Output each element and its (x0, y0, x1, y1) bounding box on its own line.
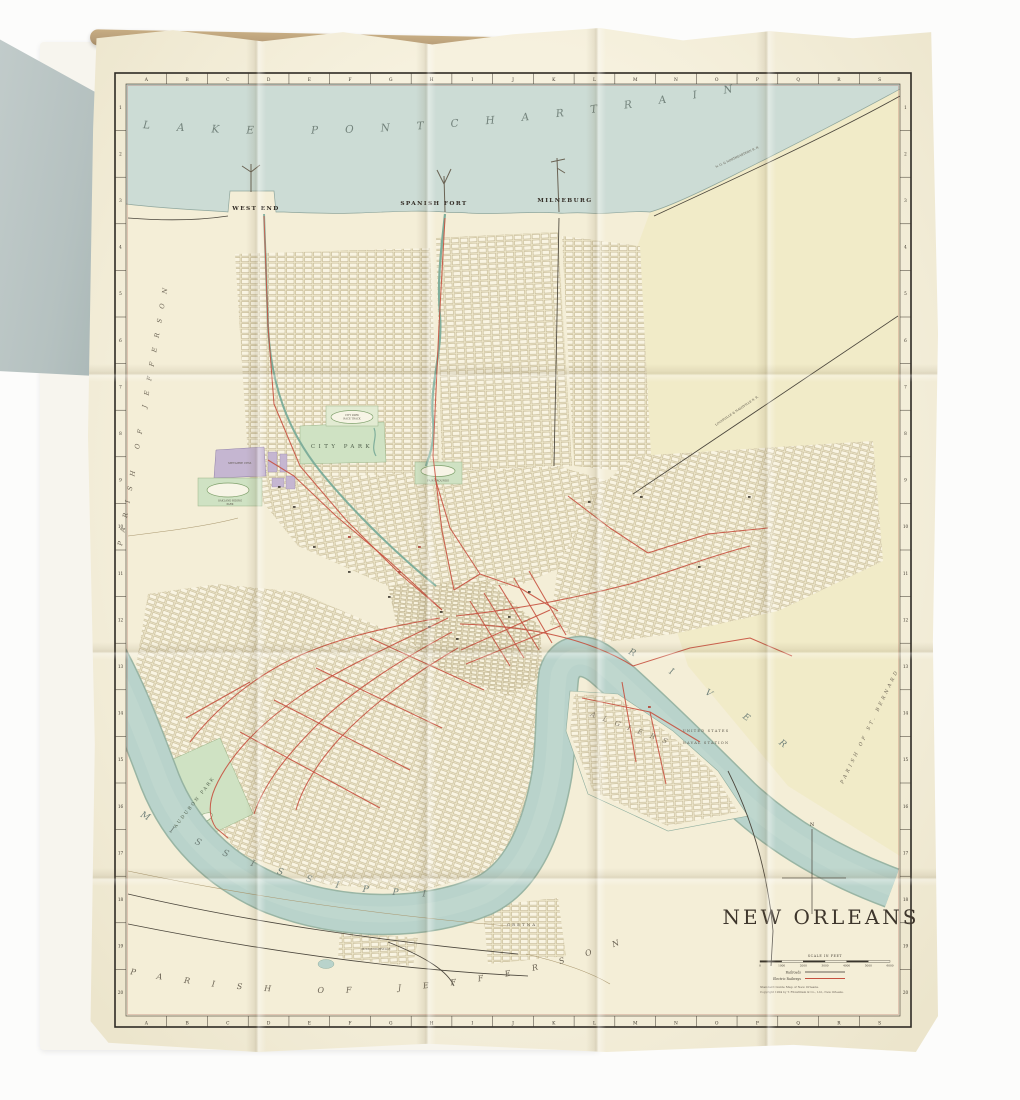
svg-text:9: 9 (119, 478, 122, 483)
race-track-label-2: RACE TRACK (343, 418, 360, 421)
svg-text:E: E (308, 78, 311, 83)
legend-electric-label: Electric Railways (773, 977, 801, 981)
pond (318, 960, 334, 969)
svg-text:F: F (349, 1022, 352, 1027)
svg-text:3: 3 (904, 198, 907, 203)
gretna-label: GRETNA (507, 922, 537, 927)
svg-text:8: 8 (904, 431, 907, 436)
svg-text:R: R (837, 1022, 841, 1027)
svg-text:I: I (471, 78, 473, 83)
svg-text:G: G (389, 1022, 393, 1027)
mcdonoghville-label: McDONOGHVILLE (361, 947, 390, 951)
map-interior (98, 84, 900, 1016)
svg-text:P: P (756, 1022, 759, 1027)
svg-text:S: S (878, 78, 881, 83)
scale-caption: SCALE IN FEET (808, 954, 843, 958)
svg-text:K: K (552, 78, 556, 83)
svg-text:1: 1 (119, 105, 122, 110)
svg-text:12: 12 (118, 617, 124, 622)
svg-text:13: 13 (118, 664, 124, 669)
city-park-label: CITY PARK (311, 444, 373, 450)
svg-text:G: G (389, 78, 393, 83)
svg-text:13: 13 (903, 664, 909, 669)
svg-text:Q: Q (796, 78, 800, 83)
svg-text:10: 10 (903, 524, 909, 529)
svg-text:4: 4 (904, 245, 907, 250)
svg-text:8: 8 (119, 431, 122, 436)
svg-text:7: 7 (119, 384, 122, 389)
svg-text:20: 20 (118, 990, 124, 995)
svg-text:16: 16 (118, 804, 124, 809)
svg-text:6000: 6000 (886, 963, 893, 967)
milneburg-label: MILNEBURG (537, 198, 592, 204)
photo-background: AABBCCDDEEFFGGHHIIJJKKLLMMNNOOPPQQRRSS11… (0, 0, 1020, 1100)
svg-text:N: N (674, 1022, 678, 1027)
svg-text:2: 2 (119, 151, 122, 156)
svg-text:3000: 3000 (821, 963, 828, 967)
svg-text:S: S (878, 1022, 881, 1027)
svg-text:1: 1 (904, 105, 907, 110)
credit-line-2: Copyright 1904 by T. Fitzwilliam & Co., … (760, 990, 844, 994)
svg-text:4000: 4000 (843, 963, 850, 967)
svg-text:16: 16 (903, 804, 909, 809)
naval-station-label-1: UNITED STATES (683, 729, 730, 733)
svg-text:14: 14 (903, 711, 909, 716)
svg-text:1000: 1000 (778, 963, 785, 967)
svg-text:15: 15 (118, 757, 124, 762)
svg-text:19: 19 (903, 944, 909, 949)
svg-text:15: 15 (903, 757, 909, 762)
svg-text:19: 19 (118, 944, 124, 949)
metairie-cemetery-label: METAIRIE CEM. (228, 461, 252, 465)
svg-text:K: K (552, 1022, 556, 1027)
svg-text:18: 18 (903, 897, 909, 902)
svg-text:N: N (674, 78, 678, 83)
map-title: NEW ORLEANS (723, 905, 920, 929)
svg-text:11: 11 (903, 571, 909, 576)
svg-text:2: 2 (904, 151, 907, 156)
legend-railroads-label: Railroads (786, 970, 802, 974)
svg-text:6: 6 (904, 338, 907, 343)
svg-text:J: J (511, 78, 514, 83)
svg-text:J: J (511, 1022, 514, 1027)
svg-text:O: O (715, 78, 719, 83)
svg-text:14: 14 (118, 711, 124, 716)
svg-text:A: A (144, 78, 149, 83)
svg-text:18: 18 (118, 897, 124, 902)
map-canvas: AABBCCDDEEFFGGHHIIJJKKLLMMNNOOPPQQRRSS11… (88, 26, 938, 1052)
svg-text:12: 12 (903, 617, 909, 622)
svg-text:2000: 2000 (800, 963, 807, 967)
svg-text:C: C (226, 78, 230, 83)
svg-text:A: A (144, 1022, 149, 1027)
svg-text:D: D (267, 78, 271, 83)
svg-text:M: M (633, 1022, 638, 1027)
svg-text:L: L (593, 78, 596, 83)
svg-text:B: B (185, 1022, 188, 1027)
naval-station-label-2: NAVAL STATION (683, 741, 730, 745)
svg-text:17: 17 (118, 850, 124, 855)
svg-text:H: H (430, 78, 434, 83)
map-sheet: AABBCCDDEEFFGGHHIIJJKKLLMMNNOOPPQQRRSS11… (88, 26, 938, 1052)
west-end-label: WEST END (231, 206, 279, 212)
race-track-label-1: CITY PARK (345, 414, 359, 417)
svg-text:H: H (430, 1022, 434, 1027)
svg-text:F: F (349, 78, 352, 83)
fair-grounds-label: FAIR GROUNDS (427, 479, 449, 483)
svg-text:11: 11 (118, 571, 124, 576)
svg-text:4: 4 (119, 245, 122, 250)
svg-text:R: R (837, 78, 841, 83)
svg-text:I: I (471, 1022, 473, 1027)
svg-text:9: 9 (904, 478, 907, 483)
oakland-park-label-2: PARK (226, 503, 233, 506)
compass-north-label: N (810, 822, 815, 828)
svg-text:D: D (267, 1022, 271, 1027)
svg-text:M: M (633, 78, 638, 83)
svg-text:3: 3 (119, 198, 122, 203)
svg-text:0: 0 (759, 963, 761, 967)
svg-text:20: 20 (903, 990, 909, 995)
svg-text:C: C (226, 1022, 230, 1027)
svg-text:7: 7 (904, 384, 907, 389)
svg-text:5: 5 (904, 291, 907, 296)
svg-text:E: E (308, 1022, 311, 1027)
svg-text:O: O (715, 1022, 719, 1027)
credit-line-1: Standard Guide Map of New Orleans. (760, 985, 819, 989)
svg-text:Q: Q (796, 1022, 800, 1027)
svg-text:6: 6 (119, 338, 122, 343)
svg-text:17: 17 (903, 850, 909, 855)
svg-text:5: 5 (119, 291, 122, 296)
svg-text:5000: 5000 (865, 963, 872, 967)
svg-text:B: B (185, 78, 188, 83)
spanish-fort-label: SPANISH FORT (400, 201, 467, 207)
svg-text:L: L (593, 1022, 596, 1027)
